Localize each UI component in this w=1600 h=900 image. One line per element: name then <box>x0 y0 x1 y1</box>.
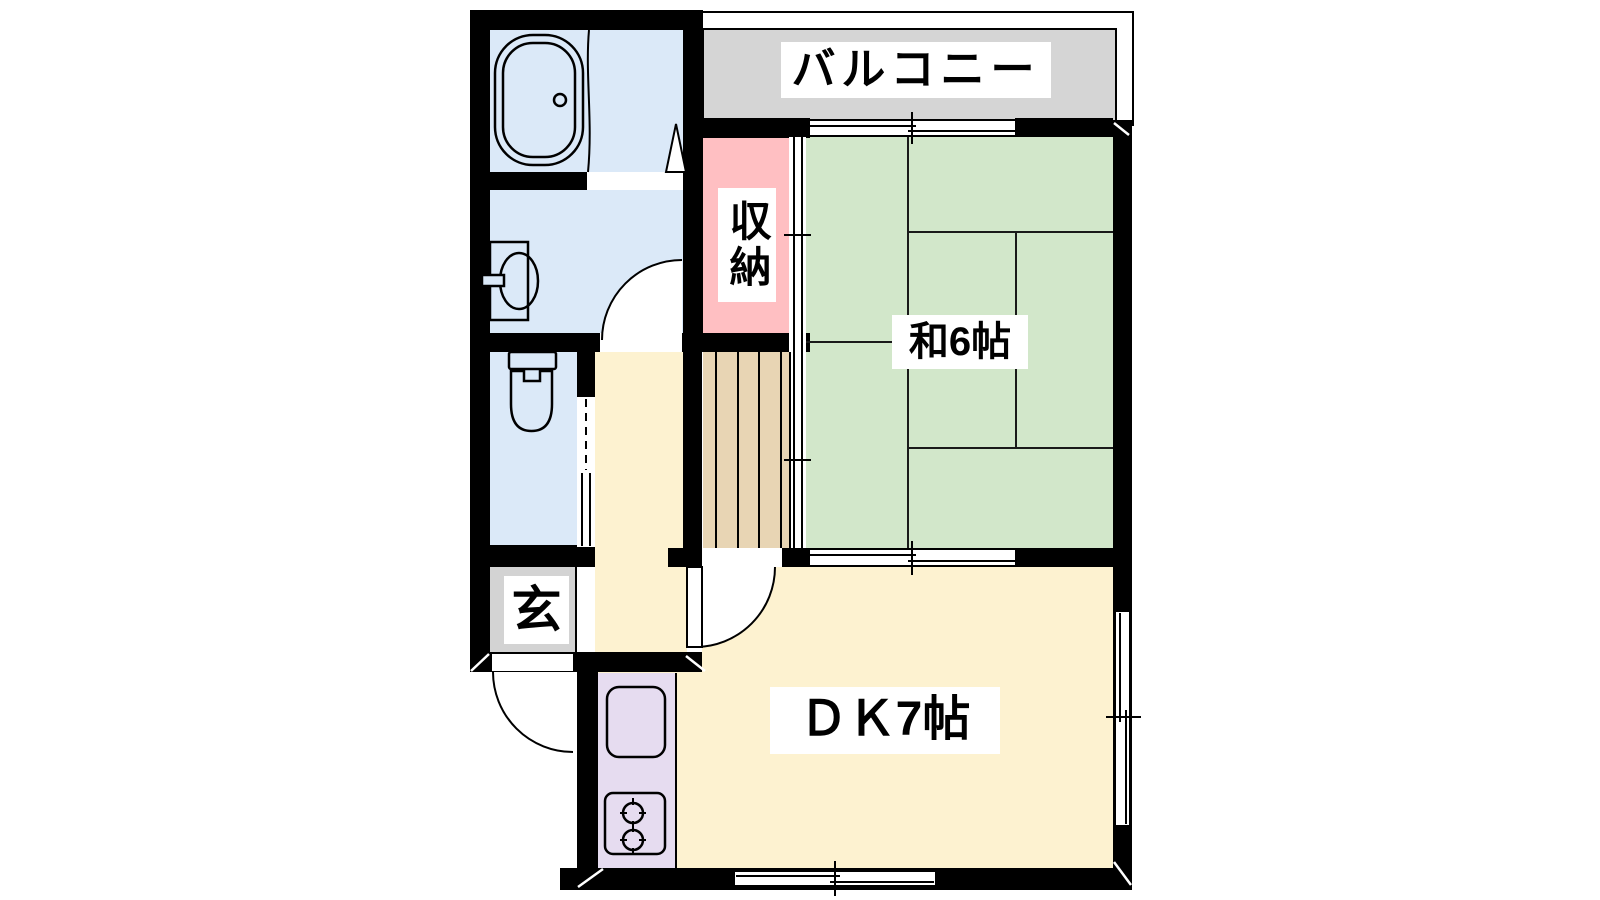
floor-plan: バルコニー 収納 和6帖 ＤＫ7帖 玄 <box>0 0 1600 900</box>
dk-east-window-rails <box>1106 613 1141 824</box>
balcony-label: バルコニー <box>781 42 1051 98</box>
entrance-door-arc-icon <box>493 672 573 752</box>
bathtub-icon <box>495 35 583 165</box>
balcony-label-text: バルコニー <box>791 47 1040 93</box>
dk-south-window-rails <box>736 861 934 896</box>
bath-partition-icon <box>588 30 590 172</box>
toilet-icon <box>509 352 556 431</box>
balcony-sliding-window-icon <box>810 112 1015 144</box>
kitchen-sink-icon <box>607 687 665 757</box>
bath-door-triangle-icon <box>666 124 686 172</box>
dk-door-leaf-icon <box>687 567 702 647</box>
japanese-room-label-text: 和6帖 <box>909 321 1011 363</box>
vanity-basin-icon <box>482 242 538 320</box>
washroom-door-swing-fill <box>602 260 682 340</box>
toilet-sliding-door-icon <box>582 473 590 546</box>
japanese-room-label: 和6帖 <box>892 315 1028 369</box>
closet-label: 収納 <box>718 188 776 302</box>
entrance-label-text: 玄 <box>512 584 562 637</box>
symbols-layer <box>0 0 1600 900</box>
entrance-label: 玄 <box>504 576 569 644</box>
washitsu-dk-sliding-door-icon <box>810 541 1015 575</box>
closet-label-text: 収納 <box>725 199 769 291</box>
dk-door-swing-fill <box>695 567 775 647</box>
dk-label-text: ＤＫ7帖 <box>800 695 971 745</box>
gas-stove-2-burner-icon <box>605 793 665 855</box>
dk-label: ＤＫ7帖 <box>770 687 1000 754</box>
staircase-icon <box>716 352 790 548</box>
